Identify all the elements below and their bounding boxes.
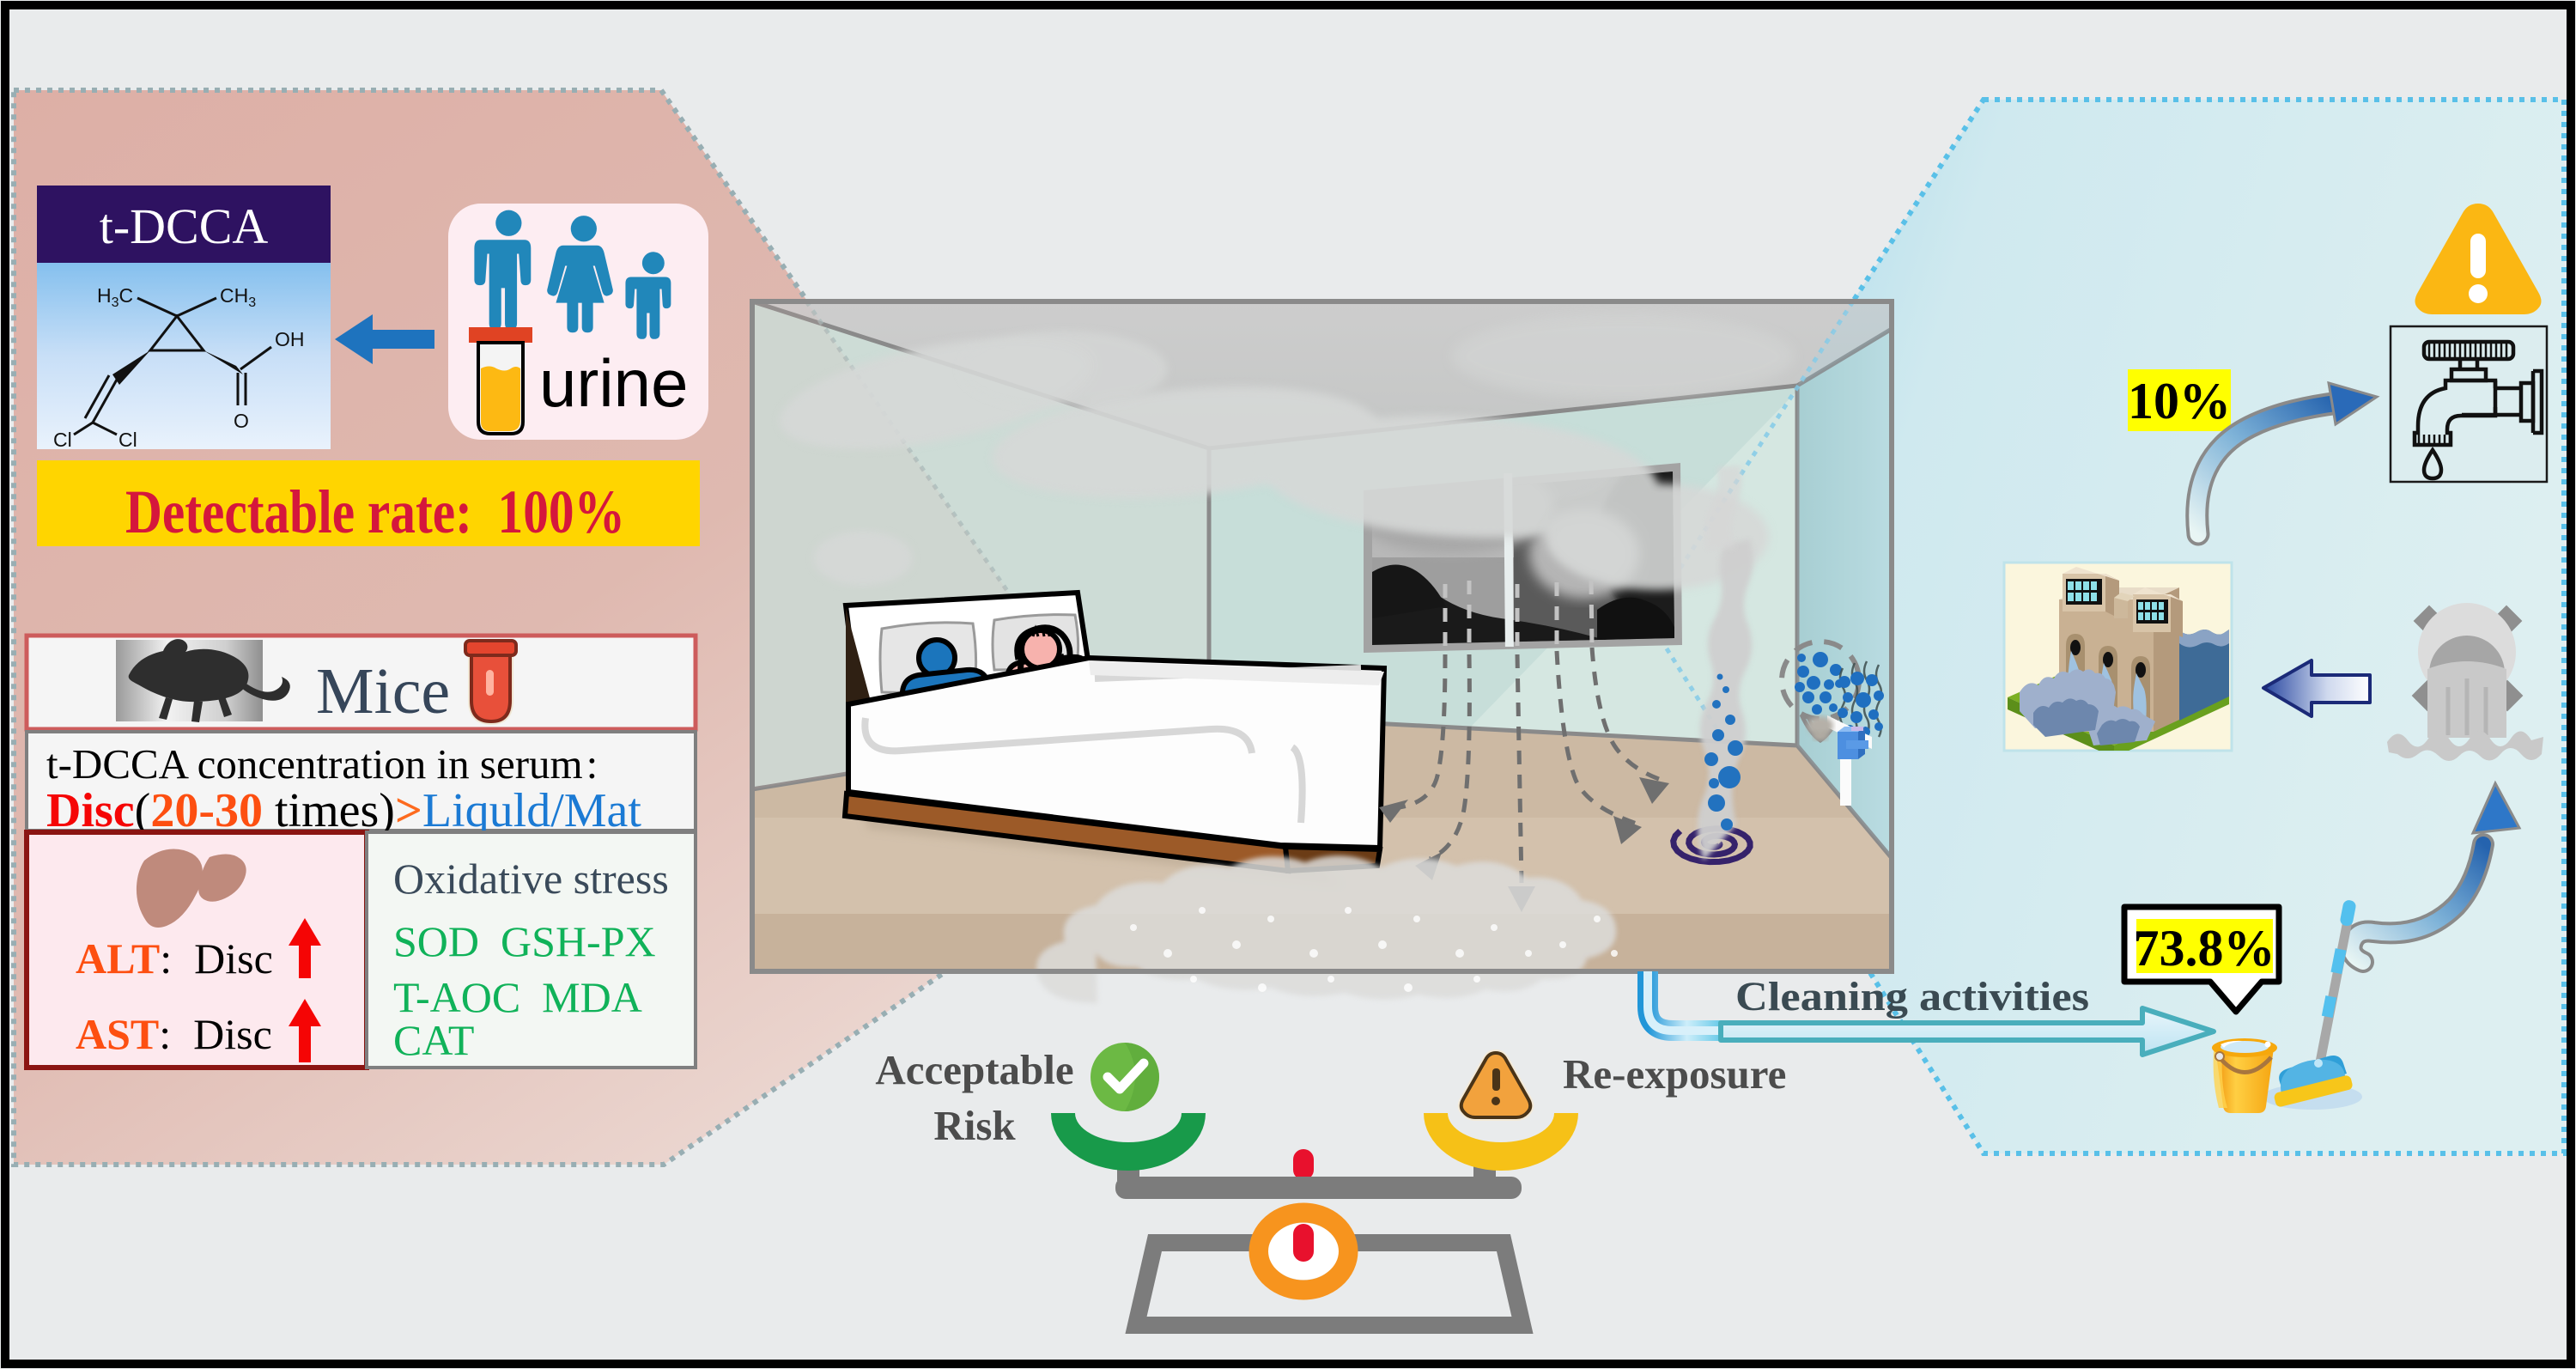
svg-text:Detectable rate: 100%: Detectable rate: 100% [125,478,625,546]
svg-text:Acceptable: Acceptable [875,1046,1073,1093]
svg-text:t-DCCA: t-DCCA [100,198,269,254]
svg-text:10%: 10% [2128,373,2231,429]
svg-text:SOD GSH-PX: SOD GSH-PX [393,917,656,965]
svg-text:CAT: CAT [393,1016,474,1064]
svg-text:Disc(20-30 times)>Liquld/Mat: Disc(20-30 times)>Liquld/Mat [46,784,641,837]
svg-text:T-AOC MDA: T-AOC MDA [393,973,642,1021]
svg-text:t-DCCA concentration in serum:: t-DCCA concentration in serum: [46,740,598,788]
svg-text:73.8%: 73.8% [2134,920,2275,977]
svg-text:O: O [234,410,249,432]
svg-text:Oxidative stress: Oxidative stress [393,855,669,903]
svg-text:Cl: Cl [118,429,137,451]
svg-text:Risk: Risk [933,1102,1016,1149]
svg-text:Cl: Cl [53,429,72,451]
svg-text:OH: OH [275,328,305,350]
svg-text:Re-exposure: Re-exposure [1563,1050,1786,1098]
svg-text:Mice: Mice [316,655,450,727]
svg-text:Cleaning activities: Cleaning activities [1735,974,2089,1019]
svg-text:urine: urine [539,345,688,421]
